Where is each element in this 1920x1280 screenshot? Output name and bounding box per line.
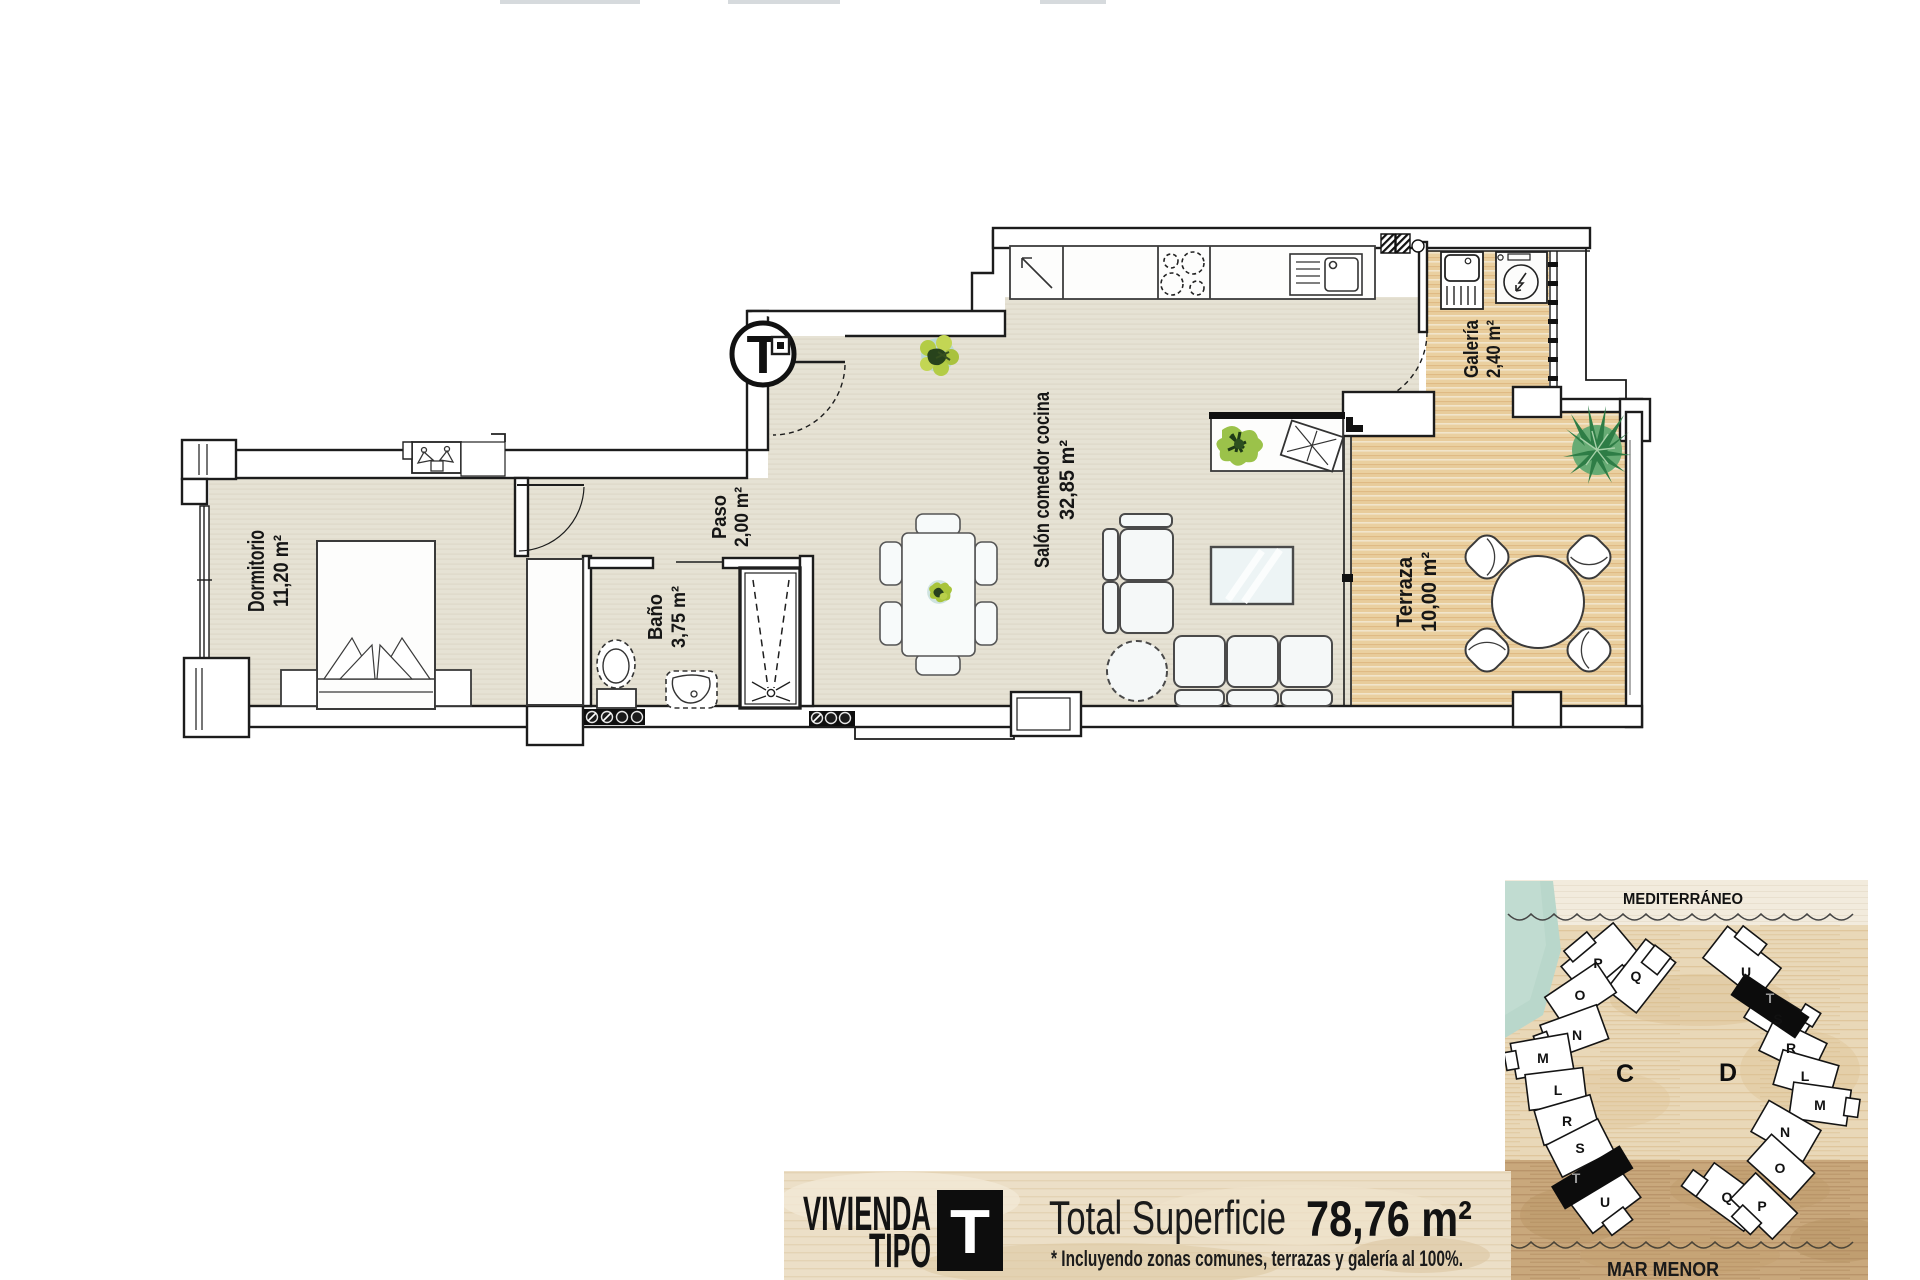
svg-text:11,20 m²: 11,20 m² [270,535,293,607]
svg-text:78,76 m²: 78,76 m² [1306,1191,1472,1247]
svg-text:C: C [1616,1060,1634,1088]
svg-text:R: R [1562,1113,1572,1129]
svg-text:10,00 m²: 10,00 m² [1418,552,1441,632]
svg-text:D: D [1719,1059,1737,1087]
svg-text:Baño: Baño [645,594,667,640]
svg-text:MEDITERRÁNEO: MEDITERRÁNEO [1623,889,1743,908]
svg-text:Terraza: Terraza [1392,556,1417,627]
svg-text:MAR MENOR: MAR MENOR [1607,1259,1719,1280]
svg-text:* Incluyendo zonas comunes, te: * Incluyendo zonas comunes, terrazas y g… [1051,1246,1463,1271]
svg-text:S: S [1773,1011,1782,1027]
svg-text:L: L [1554,1082,1563,1098]
svg-text:U: U [1600,1194,1610,1210]
svg-text:Galería: Galería [1461,319,1483,378]
svg-text:Q: Q [1722,1189,1733,1205]
svg-text:R: R [1786,1040,1796,1056]
svg-text:32,85 m²: 32,85 m² [1056,440,1079,520]
svg-text:Salón comedor cocina: Salón comedor cocina [1031,392,1054,568]
svg-text:Q: Q [1631,968,1642,984]
svg-text:P: P [1593,955,1602,971]
svg-text:3,75 m²: 3,75 m² [669,586,690,648]
svg-text:S: S [1575,1140,1584,1156]
svg-text:M: M [1537,1050,1549,1066]
svg-text:T: T [1766,990,1775,1006]
svg-text:O: O [1575,987,1586,1003]
svg-text:2,40 m²: 2,40 m² [1484,320,1505,378]
svg-text:O: O [1775,1160,1786,1176]
svg-text:TIPO: TIPO [869,1225,931,1278]
svg-text:M: M [1814,1097,1826,1113]
svg-text:2,00 m²: 2,00 m² [732,487,753,547]
svg-text:P: P [1757,1198,1766,1214]
svg-text:U: U [1741,964,1751,980]
svg-text:T: T [950,1198,990,1267]
svg-text:N: N [1780,1124,1790,1140]
svg-text:Paso: Paso [709,495,731,539]
svg-text:Total Superficie: Total Superficie [1049,1191,1286,1244]
svg-text:L: L [1801,1068,1810,1084]
svg-text:N: N [1572,1027,1582,1043]
svg-text:Dormitorio: Dormitorio [243,530,269,612]
svg-text:T: T [1572,1170,1581,1186]
